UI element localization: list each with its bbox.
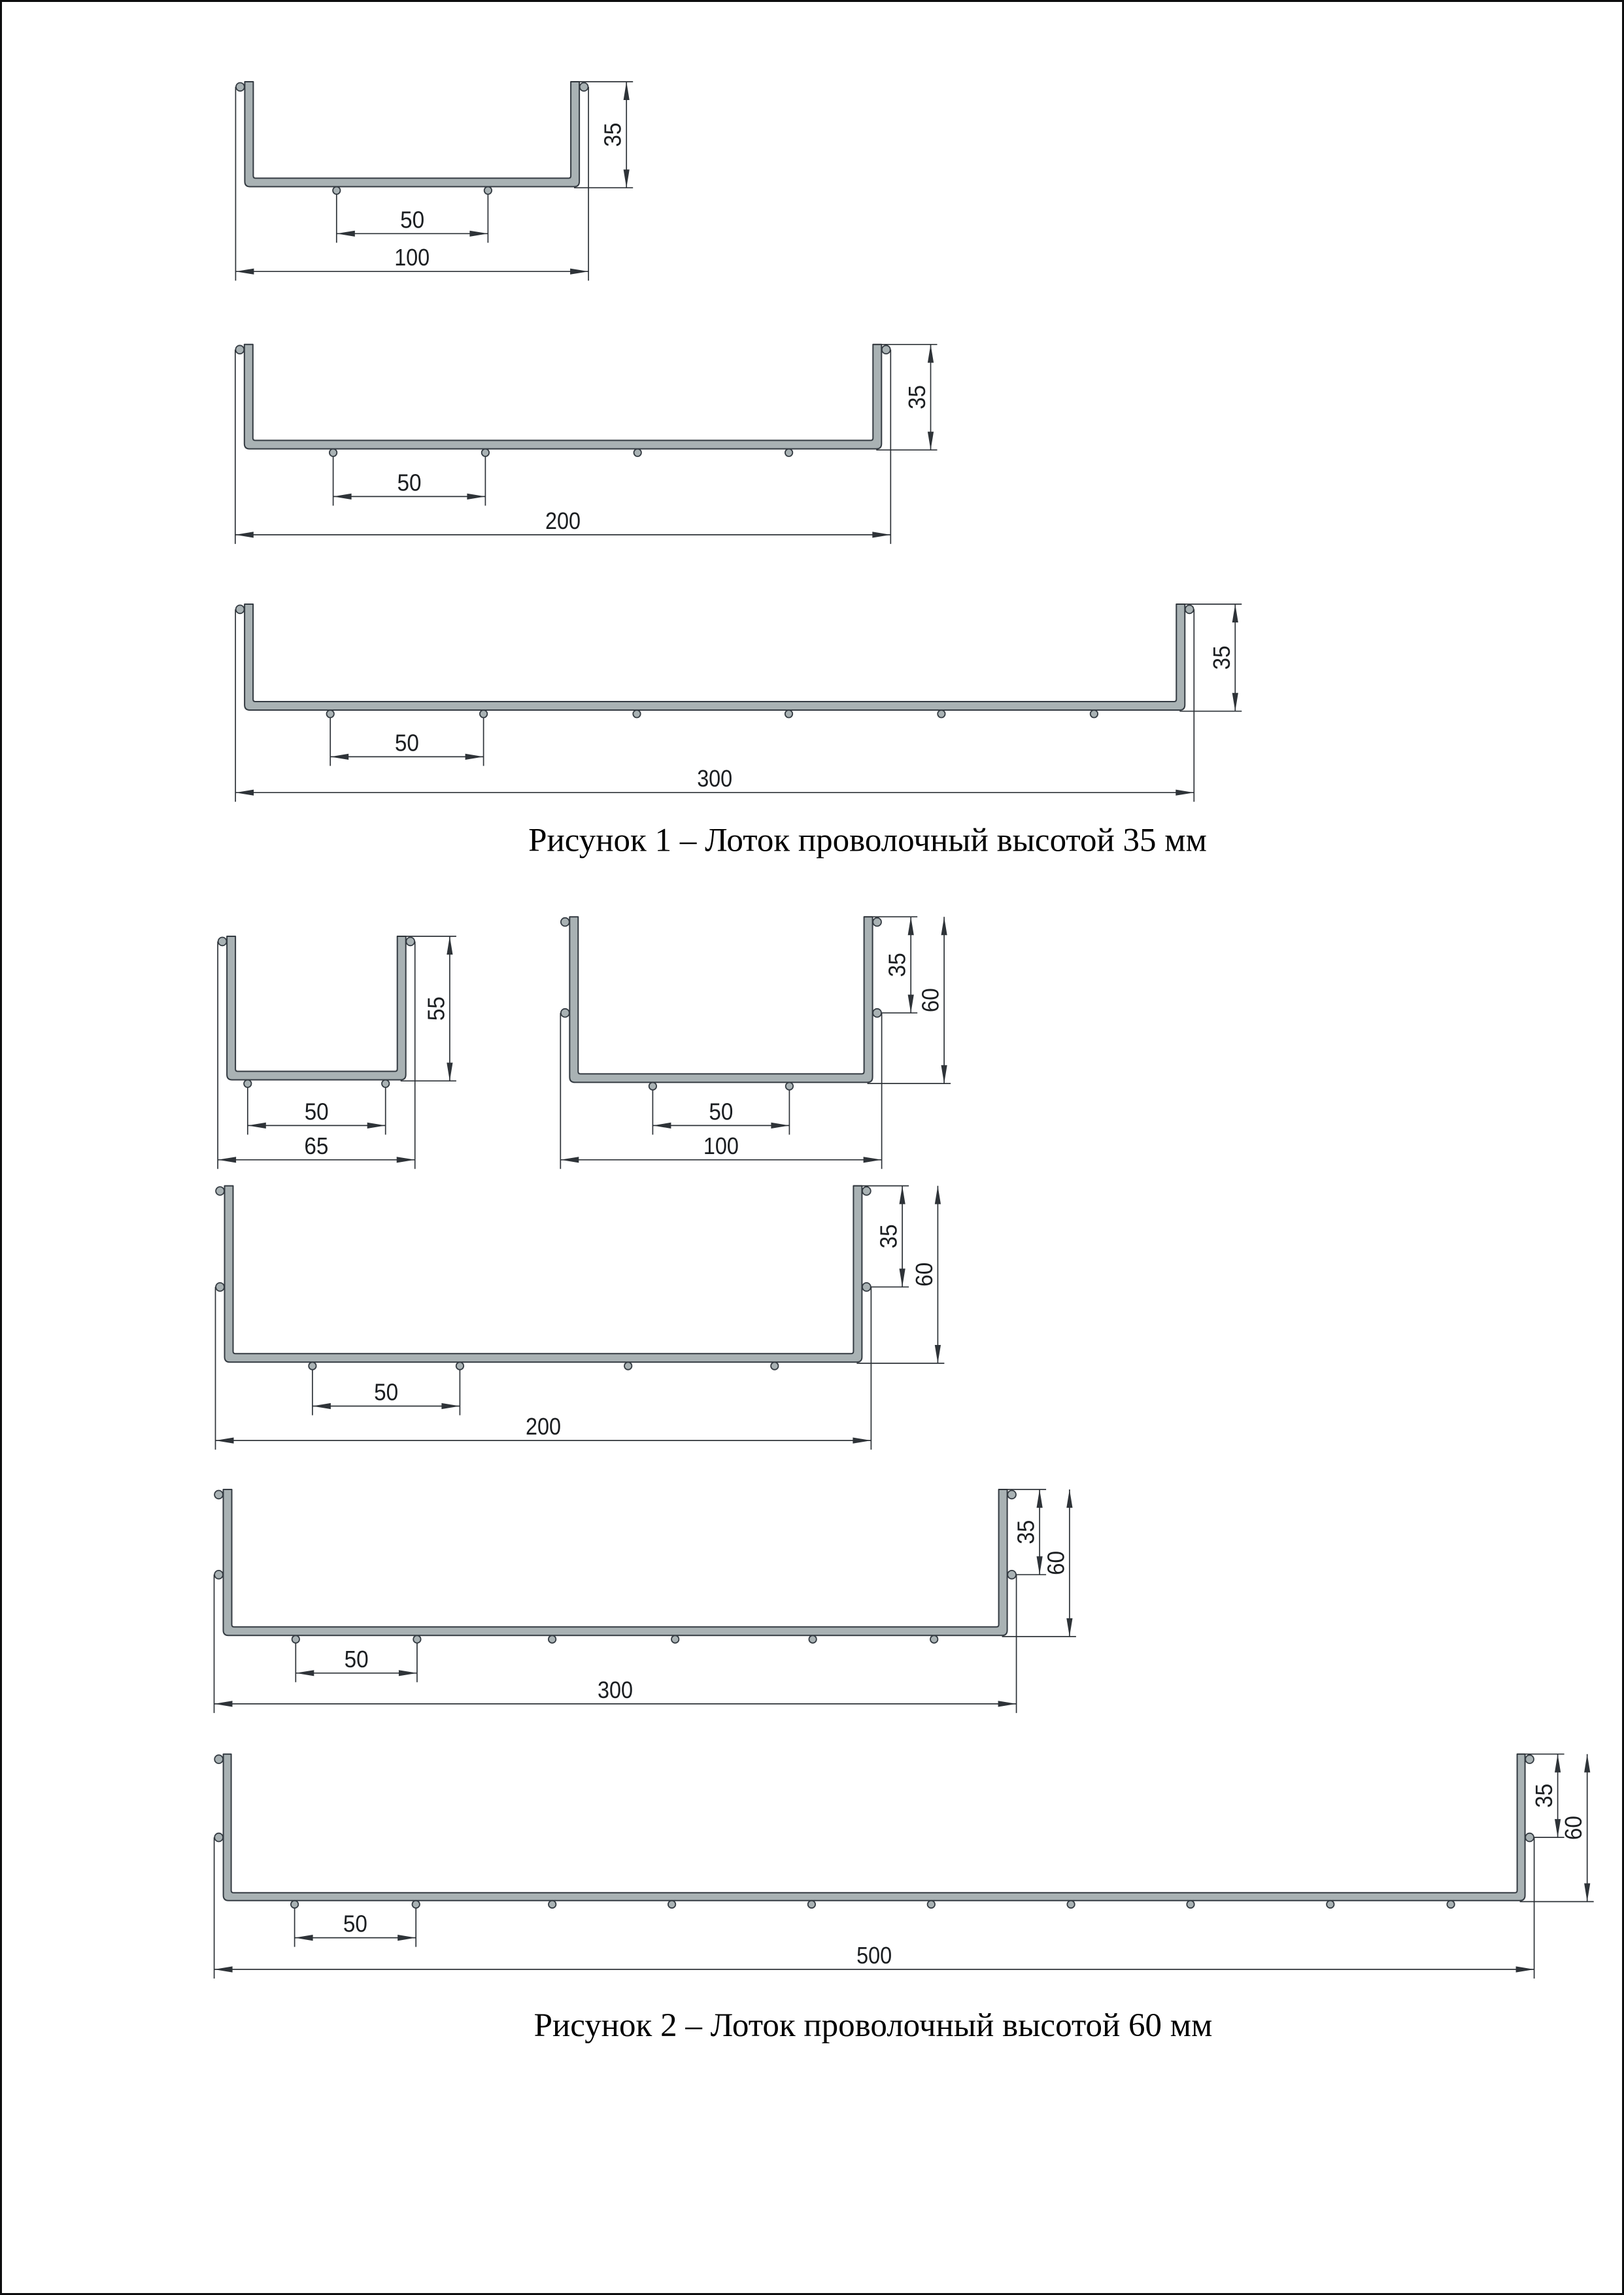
svg-text:35: 35 — [904, 385, 930, 409]
svg-text:35: 35 — [1208, 645, 1235, 670]
svg-text:200: 200 — [526, 1413, 561, 1440]
svg-text:60: 60 — [917, 988, 944, 1012]
svg-text:55: 55 — [422, 996, 449, 1021]
svg-text:65: 65 — [304, 1132, 328, 1159]
svg-text:35: 35 — [875, 1224, 902, 1248]
svg-text:Рисунок 1 – Лоток проволочный: Рисунок 1 – Лоток проволочный высотой 35… — [528, 823, 1207, 859]
svg-text:50: 50 — [395, 729, 419, 756]
svg-text:50: 50 — [400, 206, 424, 233]
svg-text:35: 35 — [1013, 1520, 1040, 1544]
svg-text:50: 50 — [709, 1098, 733, 1125]
svg-text:60: 60 — [911, 1263, 938, 1287]
svg-text:60: 60 — [1560, 1816, 1587, 1840]
svg-text:50: 50 — [345, 1646, 369, 1673]
svg-text:100: 100 — [703, 1132, 739, 1159]
svg-text:50: 50 — [398, 469, 422, 496]
svg-text:35: 35 — [884, 953, 911, 977]
svg-text:200: 200 — [545, 507, 581, 534]
svg-text:50: 50 — [343, 1911, 367, 1937]
svg-text:50: 50 — [305, 1098, 329, 1125]
svg-text:500: 500 — [856, 1942, 892, 1969]
svg-text:35: 35 — [600, 123, 626, 147]
svg-text:Рисунок 2 – Лоток проволочный: Рисунок 2 – Лоток проволочный высотой 60… — [534, 2007, 1213, 2044]
svg-text:50: 50 — [374, 1379, 398, 1406]
svg-text:60: 60 — [1042, 1551, 1069, 1575]
svg-text:300: 300 — [697, 765, 732, 792]
svg-text:300: 300 — [598, 1676, 633, 1703]
svg-text:35: 35 — [1531, 1784, 1557, 1808]
svg-text:100: 100 — [394, 244, 430, 271]
